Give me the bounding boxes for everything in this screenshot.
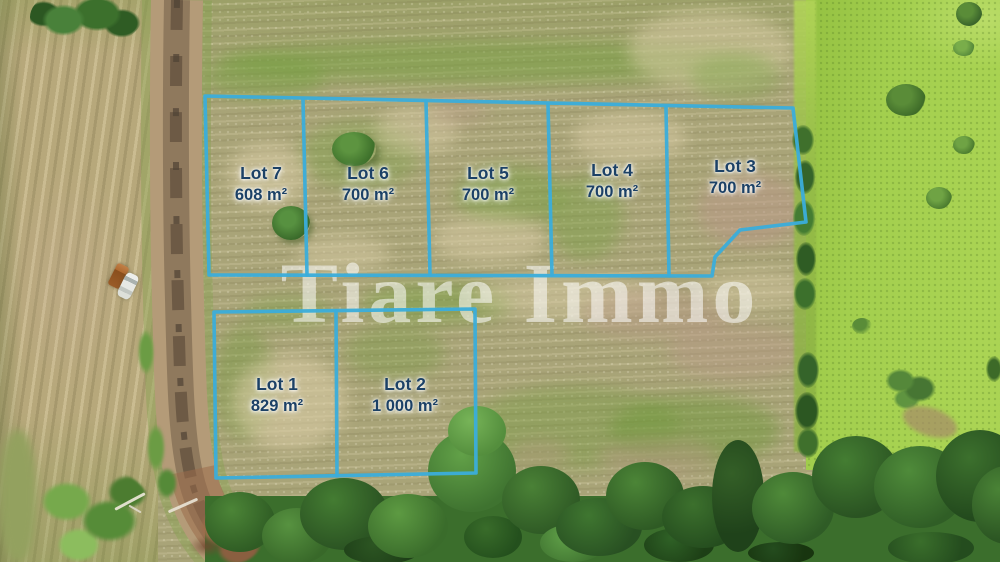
lot-divider-4-3 bbox=[666, 107, 669, 276]
lot-divider-5-4 bbox=[548, 104, 552, 275]
lot-3-label: Lot 3 700 m² bbox=[709, 156, 761, 199]
lot-area: 700 m² bbox=[586, 182, 638, 203]
lot-name: Lot 1 bbox=[251, 374, 303, 396]
lot-5-label: Lot 5 700 m² bbox=[462, 163, 514, 206]
lot-1-label: Lot 1 829 m² bbox=[251, 374, 303, 417]
lot-area: 700 m² bbox=[709, 178, 761, 199]
lot-area: 1 000 m² bbox=[372, 396, 438, 417]
lot-name: Lot 4 bbox=[586, 160, 638, 182]
aerial-photo: Tiare Immo Lot 7 608 m² Lot 6 700 m² Lot… bbox=[0, 0, 1000, 562]
lot-name: Lot 7 bbox=[235, 163, 287, 185]
lot-divider-1-2 bbox=[336, 311, 337, 476]
lot-divider-6-5 bbox=[426, 101, 430, 275]
lot-2-label: Lot 2 1 000 m² bbox=[372, 374, 438, 417]
lot-area: 700 m² bbox=[342, 185, 394, 206]
lot-boundaries-overlay bbox=[0, 0, 1000, 562]
lot-name: Lot 5 bbox=[462, 163, 514, 185]
lot-divider-7-6 bbox=[303, 99, 307, 275]
lot-4-label: Lot 4 700 m² bbox=[586, 160, 638, 203]
lot-area: 700 m² bbox=[462, 185, 514, 206]
lot-7-label: Lot 7 608 m² bbox=[235, 163, 287, 206]
lot-name: Lot 3 bbox=[709, 156, 761, 178]
lot-name: Lot 6 bbox=[342, 163, 394, 185]
lot-area: 829 m² bbox=[251, 396, 303, 417]
lot-6-label: Lot 6 700 m² bbox=[342, 163, 394, 206]
lot-name: Lot 2 bbox=[372, 374, 438, 396]
lot-area: 608 m² bbox=[235, 185, 287, 206]
